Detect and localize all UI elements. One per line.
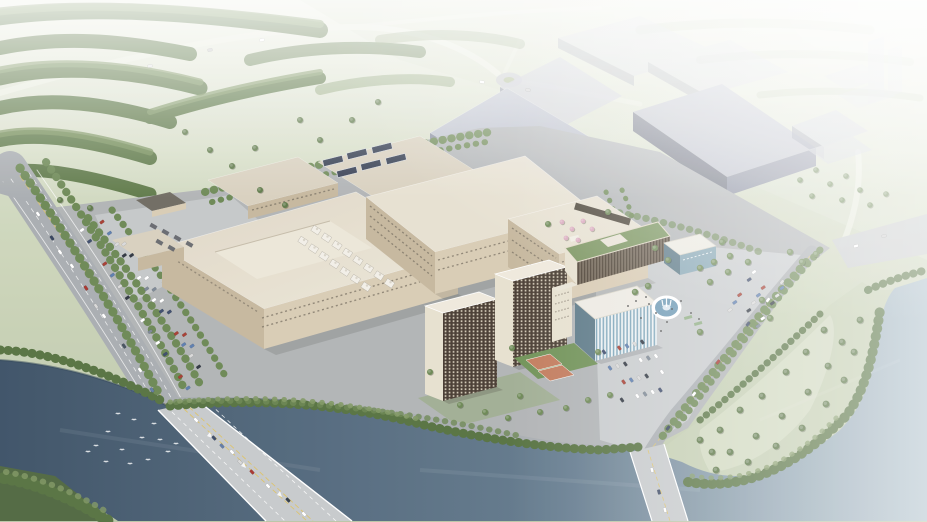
scene-canvas: [0, 0, 927, 522]
haze-overlay: [0, 0, 927, 522]
architectural-rendering: [0, 0, 927, 522]
